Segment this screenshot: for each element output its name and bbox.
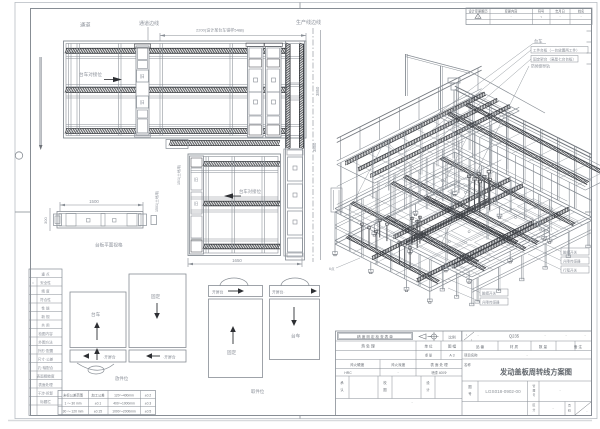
- svg-text:±0.15: ±0.15: [94, 410, 102, 414]
- svg-text:年月日: 年月日: [555, 8, 565, 13]
- svg-text:6点: 6点: [329, 266, 335, 271]
- svg-text:·: ·: [510, 14, 511, 19]
- svg-text:单 位: 单 位: [424, 344, 433, 349]
- svg-text:共 用: 共 用: [41, 322, 50, 327]
- svg-text:行程开关: 行程开关: [563, 267, 577, 272]
- svg-text:热 处 理: 热 处 理: [361, 344, 375, 349]
- svg-text:触摸开关: 触摸开关: [563, 249, 577, 254]
- svg-text:·: ·: [544, 333, 545, 338]
- svg-text:旧: 旧: [140, 99, 145, 106]
- svg-text:淬火深度: 淬火深度: [391, 362, 406, 367]
- svg-text:1000～2000mm: 1000～2000mm: [112, 410, 136, 414]
- svg-text:·: ·: [580, 14, 581, 19]
- svg-text:LGS018-0902-00: LGS018-0902-00: [485, 389, 521, 394]
- svg-text:·¹: ·¹: [540, 15, 542, 19]
- svg-text:15/1(土地用): 15/1(土地用): [176, 165, 181, 185]
- svg-text:符合性: 符合性: [40, 297, 51, 302]
- svg-text:·: ·: [584, 333, 585, 338]
- svg-text:加工公差: 加工公差: [91, 393, 105, 398]
- svg-text:干涉·拆卸: 干涉·拆卸: [38, 390, 54, 395]
- svg-text:固定: 固定: [227, 349, 237, 356]
- svg-text:项目名称: 项目名称: [464, 353, 478, 358]
- svg-text:性 能: 性 能: [41, 305, 50, 310]
- svg-text:±0.1: ±0.1: [95, 402, 102, 406]
- svg-text:旧: 旧: [140, 73, 145, 80]
- svg-text:升降传感器: 升降传感器: [482, 299, 500, 304]
- svg-text:检图内容: 检图内容: [38, 331, 53, 336]
- svg-text:防倾倒导轨: 防倾倒导轨: [531, 64, 550, 69]
- svg-text:重 点: 重 点: [41, 271, 50, 276]
- svg-text:放件位: 放件位: [115, 375, 129, 382]
- svg-text:台板平面视格: 台板平面视格: [95, 242, 123, 249]
- svg-text:外围方法: 外围方法: [38, 339, 53, 344]
- svg-text:开屏台: 开屏台: [212, 290, 224, 295]
- svg-text:·: ·: [586, 410, 587, 414]
- svg-text:固定: 固定: [151, 293, 161, 300]
- svg-text:固定架台（高是七台台板）: 固定架台（高是七台台板）: [533, 57, 576, 62]
- svg-text:表面处理: 表面处理: [38, 382, 53, 387]
- svg-text:1650: 1650: [232, 258, 242, 263]
- svg-text:比例: 比例: [448, 335, 456, 340]
- svg-text:○: ○: [32, 281, 34, 285]
- svg-text:备 注: 备 注: [574, 344, 583, 349]
- svg-text:±0.3: ±0.3: [145, 402, 152, 406]
- svg-text:外形·配置: 外形·配置: [38, 348, 54, 353]
- svg-text:A 3: A 3: [449, 354, 454, 358]
- svg-text:1501(土地用): 1501(土地用): [154, 191, 159, 212]
- svg-text:尺寸·公差: 尺寸·公差: [38, 356, 54, 361]
- svg-text:分: 分: [533, 408, 536, 412]
- svg-text:精 度: 精 度: [41, 288, 50, 293]
- svg-text:符号: 符号: [538, 8, 544, 13]
- svg-text:材 质: 材 质: [510, 344, 519, 349]
- svg-text:·: ·: [559, 388, 560, 393]
- svg-text:安全性: 安全性: [40, 280, 51, 285]
- svg-text:码: 码: [568, 409, 571, 413]
- svg-text:姓名: 姓名: [578, 8, 584, 13]
- svg-text:·: ·: [477, 333, 478, 338]
- svg-text:1500: 1500: [89, 199, 99, 204]
- svg-text:·开屏台: ·开屏台: [103, 355, 116, 360]
- svg-text:淬火硬度: 淬火硬度: [350, 362, 365, 367]
- svg-text:Q235: Q235: [509, 334, 520, 339]
- svg-text:¹: ¹: [466, 333, 467, 337]
- svg-text:台车: 台车: [91, 311, 101, 318]
- svg-text:400～1000mm: 400～1000mm: [113, 402, 135, 406]
- svg-text:喷漆 400Φ: 喷漆 400Φ: [431, 370, 447, 375]
- svg-text:旧: 旧: [194, 200, 198, 207]
- svg-text:数 量: 数 量: [539, 344, 548, 349]
- svg-text:·: ·: [552, 406, 553, 411]
- svg-text:±0.2: ±0.2: [145, 394, 152, 398]
- svg-text:精 度 测 定 检 查 表 单: 精 度 测 定 检 查 表 单: [357, 334, 393, 339]
- svg-text:新 规: 新 规: [41, 314, 50, 319]
- svg-text:表面粗糙度: 表面粗糙度: [37, 373, 55, 378]
- svg-text:页: 页: [568, 404, 571, 408]
- svg-text:台车对接位: 台车对接位: [79, 71, 102, 78]
- svg-text:通道边线: 通道边线: [139, 20, 159, 27]
- svg-text:取件位: 取件位: [251, 388, 265, 395]
- svg-text:发动盖板周转线方案图: 发动盖板周转线方案图: [499, 368, 572, 377]
- svg-text:通道: 通道: [80, 21, 90, 29]
- svg-text:图 幅: 图 幅: [448, 344, 457, 349]
- svg-text:品 番: 品 番: [476, 344, 485, 349]
- svg-text:未标公差范围: 未标公差范围: [63, 393, 83, 398]
- svg-text:·: ·: [559, 14, 560, 19]
- svg-text:30 ～ 120 mm: 30 ～ 120 mm: [63, 410, 84, 414]
- svg-text:·: ·: [565, 333, 566, 338]
- svg-text:3850: 3850: [315, 86, 320, 96]
- svg-text:·: ·: [397, 370, 398, 375]
- svg-text:管: 管: [533, 384, 536, 388]
- svg-text:工件台板（一台放置两工件）: 工件台板（一台放置两工件）: [533, 48, 580, 53]
- svg-text:生产线边线: 生产线边线: [296, 19, 321, 26]
- svg-text:孔·轴配合: 孔·轴配合: [38, 365, 54, 370]
- svg-text:变更内容: 变更内容: [505, 8, 519, 13]
- svg-text:开屏台·: 开屏台·: [272, 290, 285, 295]
- svg-text:HRC: HRC: [344, 371, 352, 375]
- svg-text:升降传感器: 升降传感器: [563, 258, 581, 263]
- svg-text:2200(设计某台车错样54㎜): 2200(设计某台车错样54㎜): [196, 27, 245, 33]
- svg-text:触摸开关: 触摸开关: [482, 290, 496, 295]
- svg-text:旧: 旧: [194, 176, 198, 183]
- svg-text:表 面 处 理: 表 面 处 理: [430, 362, 448, 367]
- svg-text:1 ～ 30 mm: 1 ～ 30 mm: [64, 402, 81, 406]
- svg-text:设计变更履历: 设计变更履历: [468, 8, 488, 13]
- svg-text:台车对接位: 台车对接位: [239, 188, 262, 195]
- svg-text:理: 理: [533, 389, 536, 393]
- svg-text:·: ·: [526, 353, 527, 358]
- svg-text:名称: 名称: [464, 362, 471, 367]
- svg-text:标题栏: 标题栏: [40, 399, 51, 404]
- svg-text:重 量: 重 量: [425, 353, 433, 358]
- svg-text:号: 号: [533, 393, 536, 397]
- svg-text:300: 300: [43, 217, 48, 224]
- svg-text:·: ·: [411, 400, 412, 405]
- svg-text:区: 区: [533, 403, 536, 407]
- svg-text:3850: 3850: [312, 142, 317, 152]
- svg-text:·开屏台: ·开屏台: [163, 355, 176, 360]
- svg-text:±0.5: ±0.5: [145, 410, 152, 414]
- svg-text:台车: 台车: [291, 333, 301, 340]
- svg-text:120～400mm: 120～400mm: [114, 394, 134, 398]
